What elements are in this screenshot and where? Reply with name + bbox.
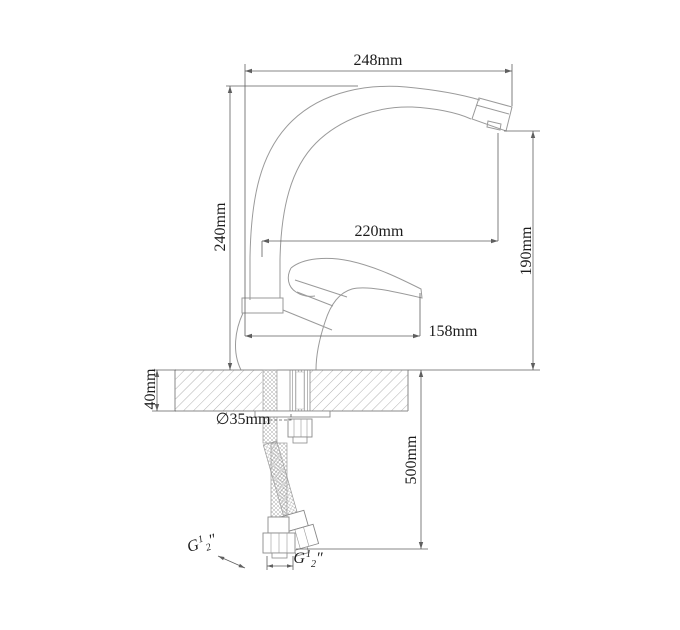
countertop-hatch-right xyxy=(310,370,408,411)
dim-label-248: 248mm xyxy=(354,53,403,69)
spout-head xyxy=(472,98,512,131)
hose-through-deck xyxy=(263,370,277,443)
countertop-hatch-left xyxy=(175,370,262,411)
dimension-lines xyxy=(152,64,540,570)
handle-seam-2 xyxy=(297,292,333,306)
shank-core xyxy=(296,372,304,409)
shank-tip xyxy=(293,437,307,443)
spout-inner-curve xyxy=(280,107,471,298)
locknut xyxy=(288,419,312,437)
faucet-technical-drawing: 248mm 240mm 220mm 190mm 158mm 40mm ∅35mm… xyxy=(0,0,680,630)
dimension-arrows xyxy=(155,69,535,568)
dim-label-158: 158mm xyxy=(429,324,478,340)
hose-ferrule-right xyxy=(268,517,289,533)
spout-collar xyxy=(242,298,283,313)
hose-tip-right xyxy=(272,553,287,558)
dim-label-500: 500mm xyxy=(404,436,420,485)
spout-outer-curve xyxy=(250,86,480,300)
dim-label-190: 190mm xyxy=(519,227,535,276)
body-left-edge xyxy=(235,313,243,370)
thread-label-right-unit: ″ xyxy=(316,550,323,567)
dim-label-220: 220mm xyxy=(355,224,404,240)
handle-outline xyxy=(291,258,422,370)
spout-head-band xyxy=(476,105,509,114)
hose-braid-right xyxy=(271,443,287,517)
body-seam xyxy=(283,310,332,330)
dim-label-40: 40mm xyxy=(143,369,159,410)
thread-label-right-letter: G xyxy=(293,550,305,567)
drawing-canvas xyxy=(0,0,680,630)
thread-label-right: G12″ xyxy=(293,550,322,570)
dim-label-dia35: ∅35mm xyxy=(216,412,271,428)
dim-label-240: 240mm xyxy=(213,203,229,252)
